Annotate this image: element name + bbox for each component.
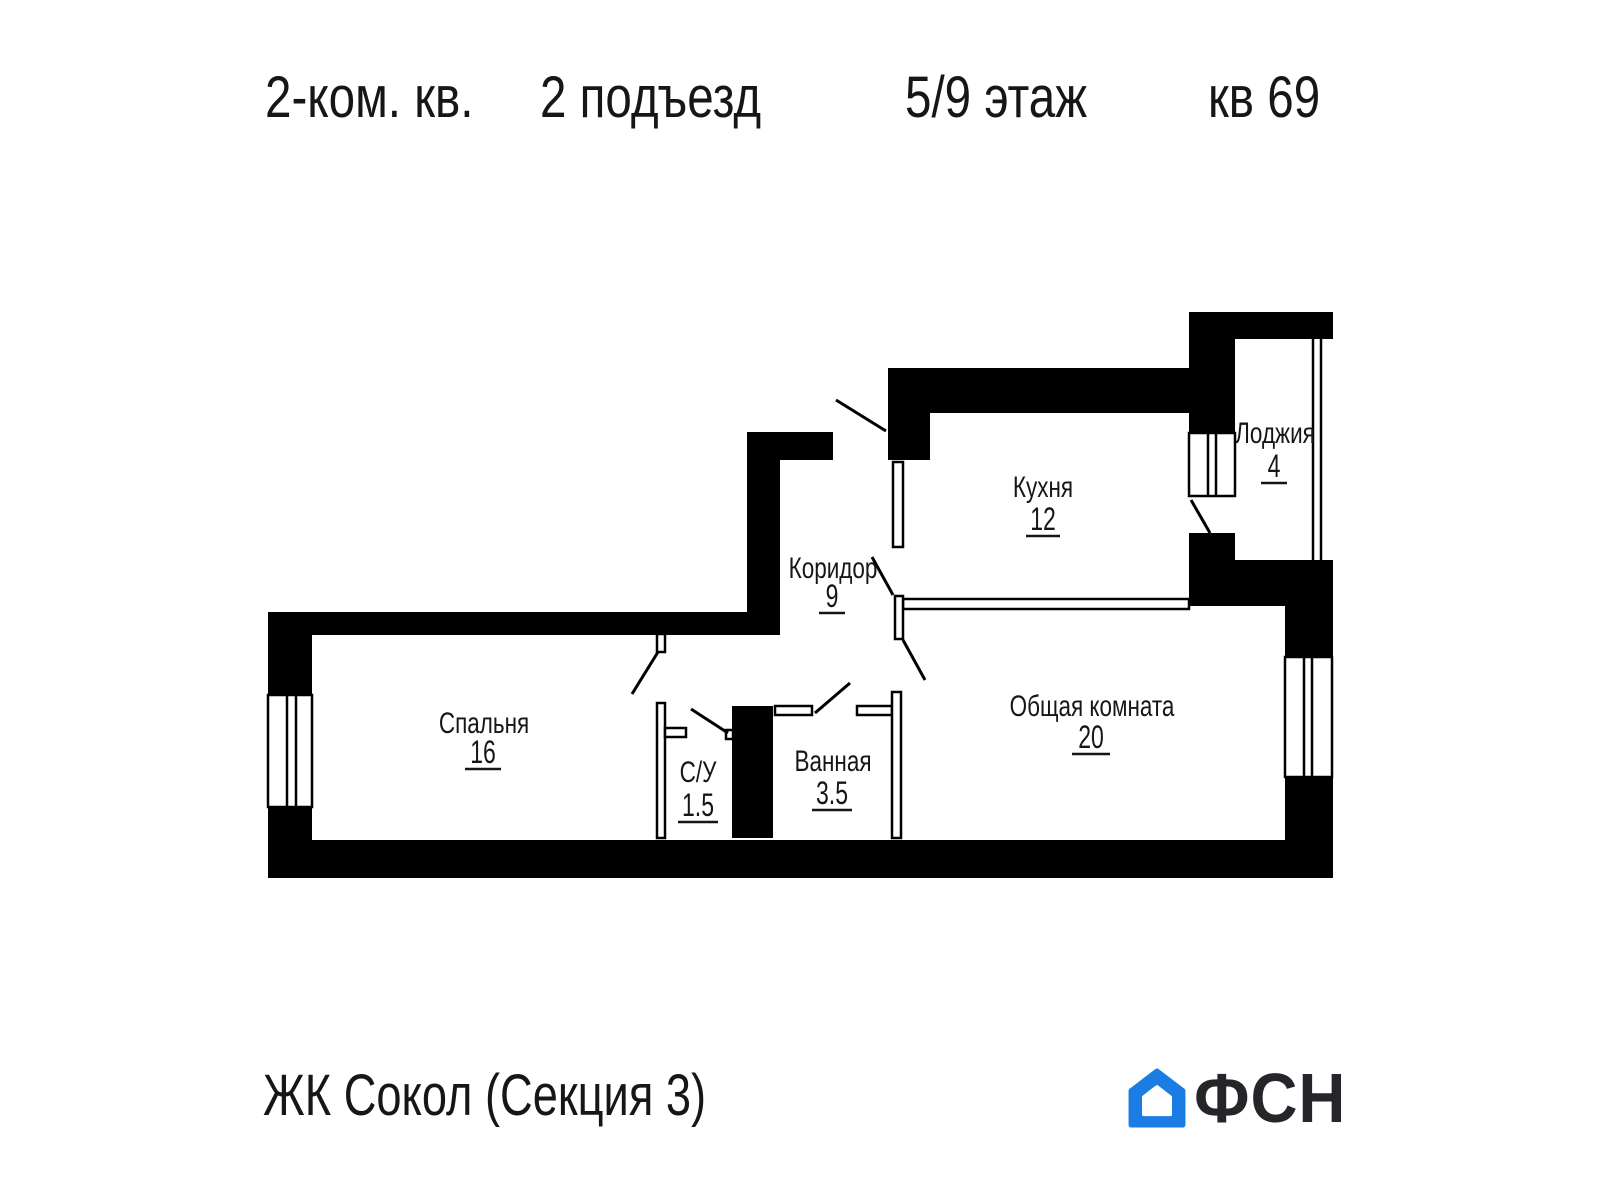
loggia-door-swing (1191, 500, 1210, 533)
kitchen-top-wall (888, 368, 1189, 413)
bedroom-window (268, 695, 312, 807)
floorplan-page: 2-ком. кв. 2 подъезд 5/9 этаж кв 69 (0, 0, 1600, 1200)
room-label-living: Общая комната (1010, 689, 1175, 723)
bath-top-wall-left (775, 706, 812, 715)
room-label-kitchen: Кухня (1013, 470, 1073, 504)
living-door-post (895, 596, 903, 639)
bedroom-partition-wall (657, 703, 665, 838)
complex-title: ЖК Сокол (Секция 3) (263, 1062, 706, 1129)
corridor-top-flange (747, 432, 833, 460)
living-window-frame (1285, 657, 1332, 777)
logo-house-icon (1128, 1068, 1186, 1128)
loggia-bottom-wall (1235, 560, 1333, 606)
bedroom-top-wall (268, 612, 780, 635)
room-label-loggia: Лоджия (1235, 416, 1315, 450)
bath-divider-wall (732, 706, 773, 838)
room-area-bedroom: 16 (470, 734, 496, 770)
loggia-left-wall-lower (1189, 533, 1235, 606)
left-wall-upper (268, 612, 312, 695)
right-wall-lower (1285, 777, 1333, 840)
room-label-wc: С/У (680, 755, 717, 789)
kitchen-door-post (893, 462, 903, 547)
living-window (1285, 657, 1332, 777)
room-area-bath: 3.5 (816, 775, 848, 811)
loggia-top-wall (1189, 312, 1333, 339)
bedroom-door-swing (632, 652, 658, 694)
bath-right-wall (892, 692, 901, 838)
floorplan-drawing: Кухня 12 Лоджия 4 Коридор 9 Спальня 16 С… (0, 0, 1600, 1200)
logo-text: ФСН (1194, 1058, 1346, 1138)
room-area-kitchen: 12 (1030, 501, 1056, 537)
bath-top-wall-right (857, 706, 892, 715)
bottom-wall (268, 840, 1333, 878)
living-door-swing (903, 640, 925, 680)
room-area-living: 20 (1078, 719, 1104, 755)
wc-stub-wall (665, 728, 686, 737)
room-area-wc: 1.5 (682, 787, 714, 823)
wc-door-swing (691, 709, 728, 733)
entrance-door-swing (836, 400, 886, 431)
bedroom-window-frame (268, 695, 312, 807)
thick-walls (268, 312, 1333, 878)
left-wall-lower (268, 807, 312, 840)
loggia-window-frame (1189, 433, 1235, 496)
loggia-door-window (1189, 433, 1235, 496)
loggia-left-wall-upper (1189, 339, 1235, 433)
entry-step-block (888, 413, 930, 460)
bedroom-door-post (657, 634, 665, 652)
corridor-left-wall (747, 432, 780, 635)
right-wall-upper (1285, 606, 1333, 657)
room-area-corridor: 9 (826, 578, 839, 614)
room-area-loggia: 4 (1268, 448, 1281, 484)
room-label-bath: Ванная (794, 744, 871, 778)
bath-door-swing (815, 683, 850, 713)
living-top-wall (903, 599, 1189, 609)
